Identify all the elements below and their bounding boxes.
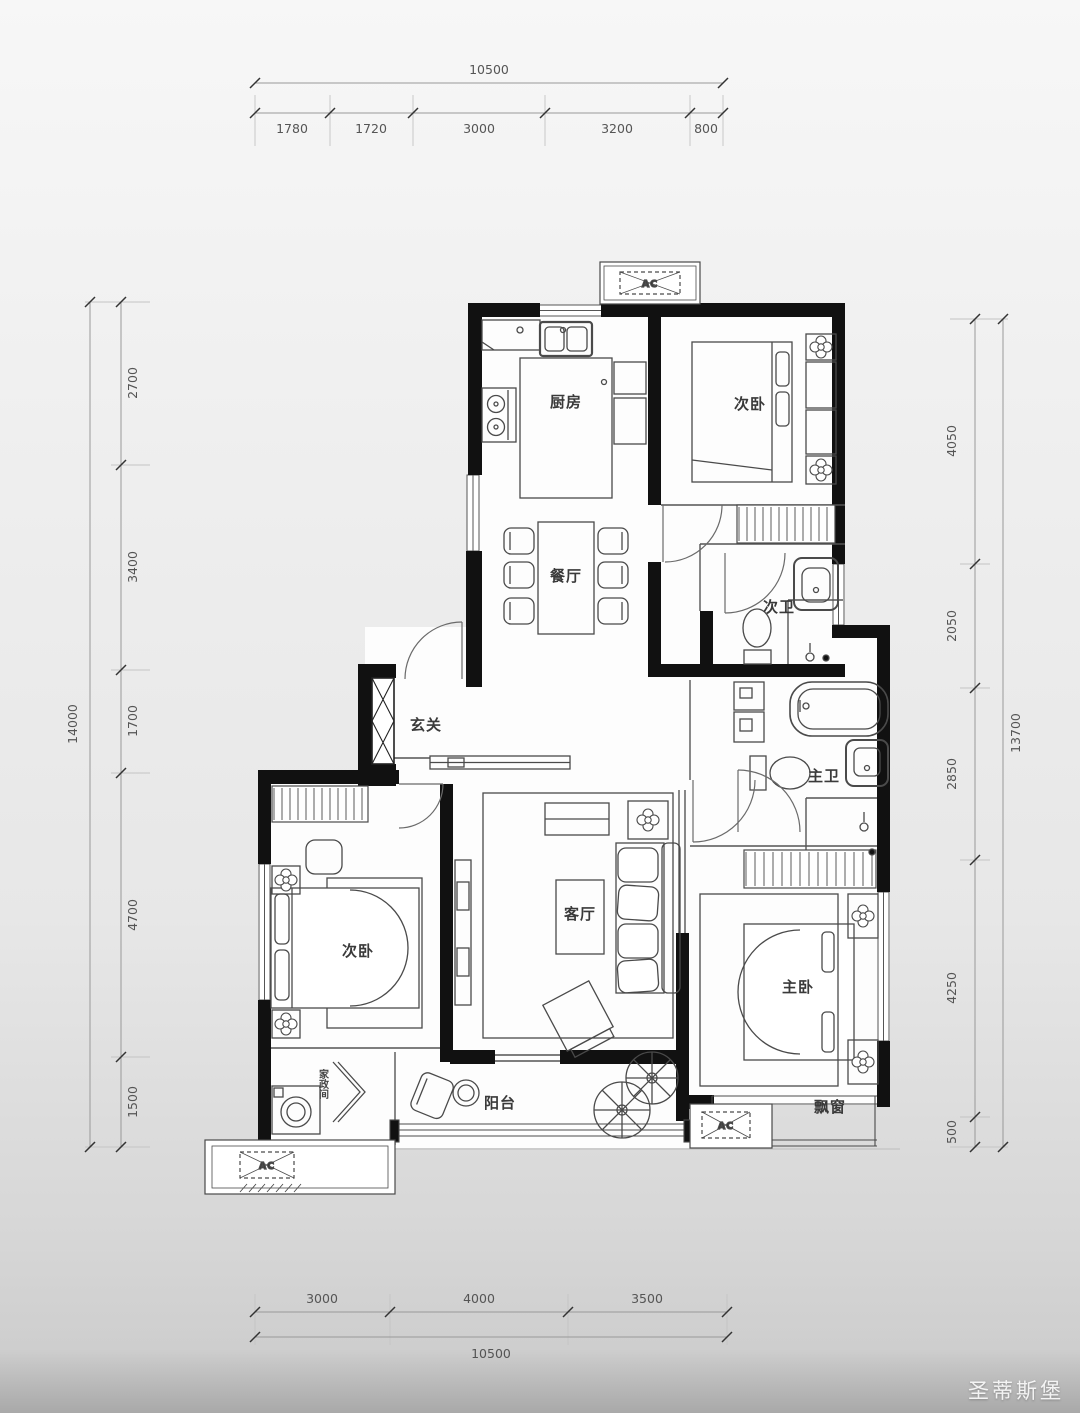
floorplan-page: AC AC AC 厨房 次卧 餐厅 次卫 玄关 主卫 客厅 次卧 主卧 阳台 飘… <box>0 0 1080 1413</box>
ac-label-bottom-left: AC <box>259 1161 275 1172</box>
dim-top-5: 800 <box>694 121 718 136</box>
label-laundry: 家政间 <box>317 1068 329 1100</box>
wardrobe-bath2 <box>737 505 835 543</box>
label-kitchen: 厨房 <box>550 393 582 411</box>
ac-label-top: AC <box>642 279 658 290</box>
dim-top-1: 1780 <box>276 121 308 136</box>
label-foyer: 玄关 <box>410 716 442 734</box>
brand-watermark: 圣蒂斯堡 <box>968 1375 1064 1405</box>
label-bath-secondary: 次卫 <box>763 598 795 616</box>
dim-top-2: 1720 <box>355 121 387 136</box>
ac-label-bottom-right: AC <box>718 1121 734 1132</box>
floorplan-drawing: AC AC AC 厨房 次卧 餐厅 次卫 玄关 主卫 客厅 次卧 主卧 阳台 飘… <box>0 0 1080 1413</box>
dim-right-total: 13700 <box>1008 713 1023 753</box>
dim-right-3: 2850 <box>944 758 959 790</box>
bottom-gradient <box>0 1349 1080 1413</box>
dim-bottom-3: 3500 <box>631 1291 663 1306</box>
dim-left-2: 3400 <box>125 551 140 583</box>
label-bedroom-top: 次卧 <box>734 395 766 413</box>
label-bedroom-master: 主卧 <box>782 978 814 996</box>
dim-bottom-1: 3000 <box>306 1291 338 1306</box>
label-bay-window: 飘窗 <box>814 1098 846 1116</box>
label-bedroom-left: 次卧 <box>342 942 374 960</box>
label-dining: 餐厅 <box>550 567 582 585</box>
dim-left-1: 2700 <box>125 367 140 399</box>
ac-platform-bottom-right: AC <box>690 1104 772 1148</box>
dim-right-5: 500 <box>944 1120 959 1144</box>
dim-bottom-2: 4000 <box>463 1291 495 1306</box>
label-living: 客厅 <box>563 905 596 923</box>
dim-right-4: 4250 <box>944 972 959 1004</box>
dim-left-total: 14000 <box>65 704 80 744</box>
dim-right-1: 4050 <box>944 425 959 457</box>
dim-top-3: 3000 <box>463 121 495 136</box>
label-bath-master: 主卫 <box>808 767 840 785</box>
shaft-column <box>372 678 394 764</box>
dim-right-2: 2050 <box>944 610 959 642</box>
dim-top-4: 3200 <box>601 121 633 136</box>
dim-left-5: 1500 <box>125 1086 140 1118</box>
dim-top-total: 10500 <box>469 62 509 77</box>
ac-platform-bottom-left: AC <box>205 1140 395 1194</box>
dim-left-3: 1700 <box>125 705 140 737</box>
ac-platform-top: AC <box>600 262 700 304</box>
label-balcony: 阳台 <box>484 1094 516 1112</box>
dim-left-4: 4700 <box>125 899 140 931</box>
